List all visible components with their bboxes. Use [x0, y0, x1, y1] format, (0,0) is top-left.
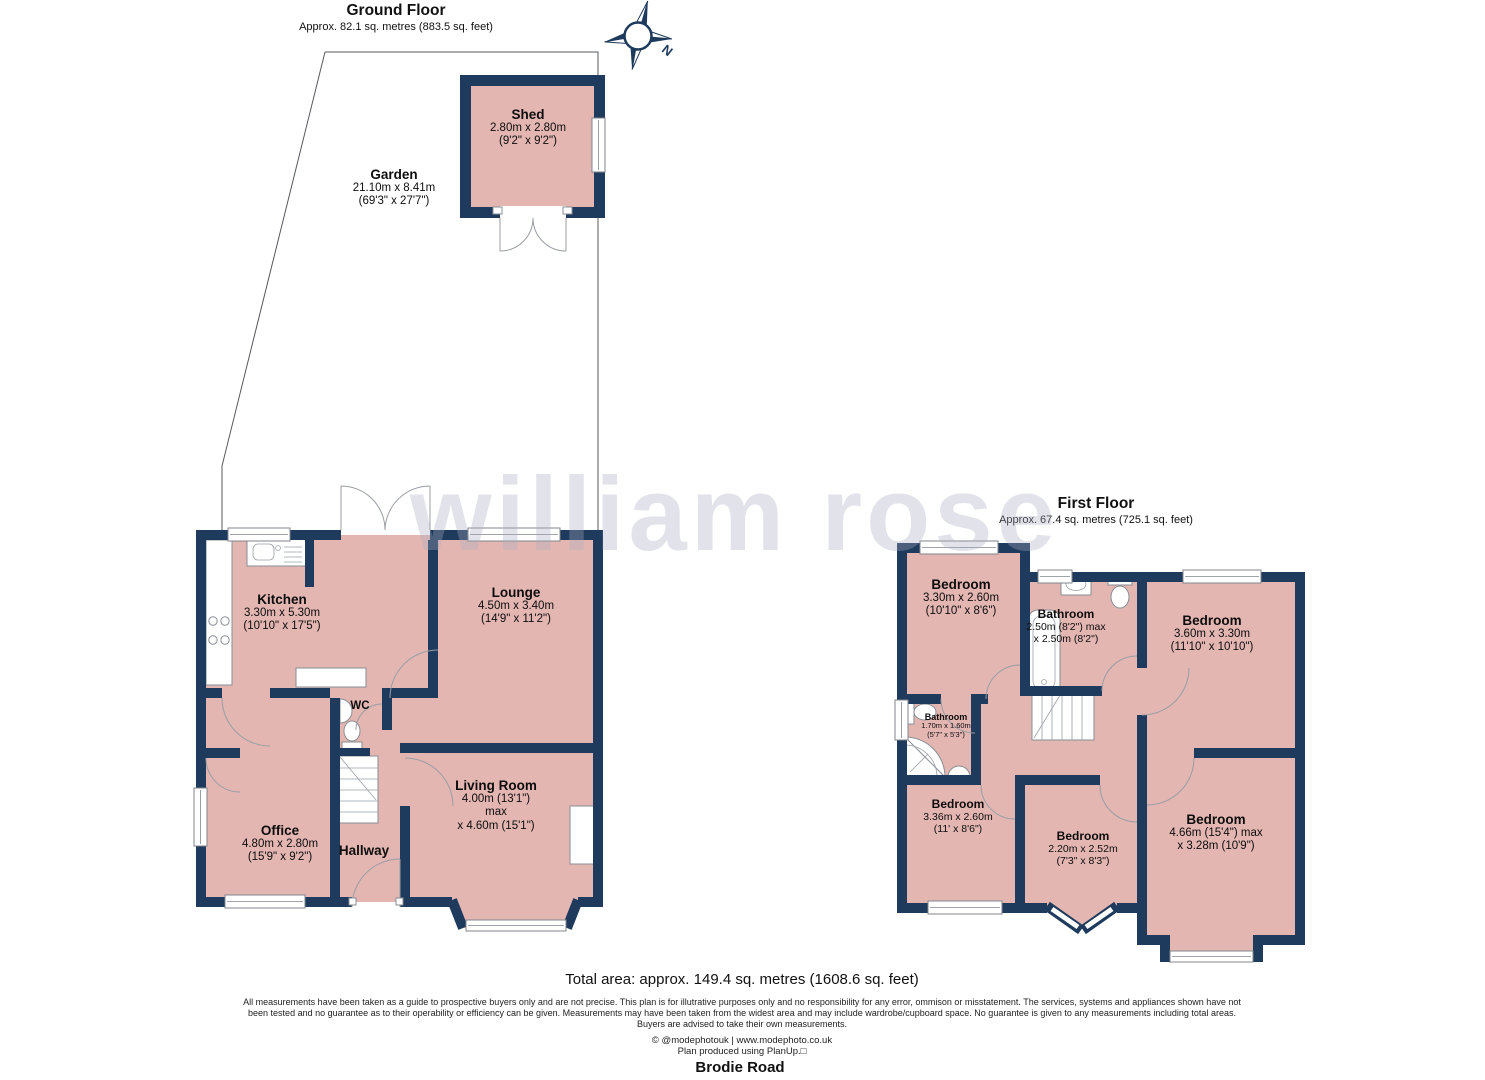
- room-name: Bedroom: [1169, 812, 1262, 827]
- room-dim-metric: 3.30m x 2.60m: [923, 592, 999, 605]
- room-dim-imperial: (69'3" x 27'7"): [353, 195, 435, 208]
- first-floor-title: First Floor Approx. 67.4 sq. metres (725…: [999, 495, 1193, 526]
- room-dim-imperial: (7'3" x 8'3"): [1048, 856, 1117, 868]
- room-label-hallway: Hallway: [339, 843, 389, 858]
- room-name: Office: [242, 823, 318, 838]
- room-dim-metric: 4.50m x 3.40m: [478, 600, 554, 613]
- room-dim-metric: 2.80m x 2.80m: [490, 122, 566, 135]
- room-dim-metric: 21.10m x 8.41m: [353, 182, 435, 195]
- room-dim-metric: 2.20m x 2.52m: [1048, 844, 1117, 856]
- shed: [460, 75, 605, 251]
- room-label-lounge: Lounge 4.50m x 3.40m (14'9" x 11'2"): [478, 585, 554, 627]
- shed-window: [592, 118, 605, 172]
- address-title: Brodie Road: [695, 1059, 784, 1076]
- room-dim-imperial: (9'2" x 9'2"): [490, 135, 566, 148]
- room-dim-imperial: (5'7" x 5'3"): [921, 731, 971, 740]
- room-name: Bathroom: [1026, 608, 1105, 622]
- room-dim-imperial: x 2.50m (8'2"): [1026, 634, 1105, 646]
- floor-title-text: First Floor: [999, 495, 1193, 513]
- disclaimer: All measurements have been taken as a gu…: [242, 997, 1242, 1030]
- room-label-bedroom-1: Bedroom 3.30m x 2.60m (10'10" x 8'6"): [923, 577, 999, 619]
- sink-icon: [247, 539, 307, 566]
- room-label-bedroom-2: Bedroom 3.60m x 3.30m (11'10" x 10'10"): [1171, 613, 1254, 655]
- room-name: Garden: [353, 167, 435, 182]
- room-name: WC: [350, 700, 369, 713]
- floor-subtitle-text: Approx. 67.4 sq. metres (725.1 sq. feet): [999, 514, 1193, 526]
- room-dim-metric: 3.36m x 2.60m: [923, 812, 992, 824]
- room-name: Lounge: [478, 585, 554, 600]
- room-label-bedroom-5: Bedroom 4.66m (15'4") max x 3.28m (10'9"…: [1169, 812, 1262, 854]
- compass-icon: N: [605, 1, 676, 70]
- room-label-living-room: Living Room 4.00m (13'1") max x 4.60m (1…: [453, 778, 539, 833]
- room-name: Hallway: [339, 843, 389, 858]
- disclaimer-line: been tested and no guarantee as to their…: [242, 1008, 1242, 1019]
- room-name: Shed: [490, 107, 566, 122]
- room-label-garden: Garden 21.10m x 8.41m (69'3" x 27'7"): [353, 167, 435, 209]
- room-dim-metric: 4.66m (15'4") max: [1169, 827, 1262, 840]
- floorplan-page: N: [0, 0, 1485, 1080]
- room-dim-imperial: x 4.60m (15'1"): [453, 820, 539, 833]
- compass-north-label: N: [659, 41, 676, 59]
- floor-subtitle-text: Approx. 82.1 sq. metres (883.5 sq. feet): [299, 21, 493, 33]
- room-name: Bedroom: [923, 798, 992, 812]
- room-name: Kitchen: [243, 592, 320, 607]
- room-dim-metric: 4.00m (13'1") max: [453, 793, 539, 819]
- credit-line-2: Plan produced using PlanUp.□: [678, 1046, 807, 1057]
- room-label-bathroom-2: Bathroom 1.70m x 1.60m (5'7" x 5'3"): [921, 712, 971, 739]
- room-label-bedroom-3: Bedroom 3.36m x 2.60m (11' x 8'6"): [923, 798, 992, 836]
- stairs-icon: [1032, 690, 1094, 740]
- room-name: Living Room: [453, 778, 539, 793]
- stairs-icon: [338, 756, 378, 823]
- room-name: Bedroom: [923, 577, 999, 592]
- shed-door-arcs: [500, 218, 566, 251]
- floorplan-canvas: N: [0, 0, 1485, 1080]
- room-label-wc: WC: [350, 700, 369, 713]
- room-dim-metric: 3.30m x 5.30m: [243, 607, 320, 620]
- kitchen-counter: [206, 540, 232, 685]
- room-label-bedroom-4: Bedroom 2.20m x 2.52m (7'3" x 8'3"): [1048, 830, 1117, 868]
- room-label-bathroom-1: Bathroom 2.50m (8'2") max x 2.50m (8'2"): [1026, 608, 1105, 646]
- room-label-office: Office 4.80m x 2.80m (15'9" x 9'2"): [242, 823, 318, 865]
- total-area-text: Total area: approx. 149.4 sq. metres (16…: [565, 971, 919, 988]
- room-name: Bedroom: [1171, 613, 1254, 628]
- floor-title-text: Ground Floor: [299, 2, 493, 20]
- room-dim-metric: 3.60m x 3.30m: [1171, 628, 1254, 641]
- room-dim-imperial: x 3.28m (10'9"): [1169, 840, 1262, 853]
- room-dim-imperial: (10'10" x 17'5"): [243, 620, 320, 633]
- room-label-shed: Shed 2.80m x 2.80m (9'2" x 9'2"): [490, 107, 566, 149]
- room-dim-imperial: (15'9" x 9'2"): [242, 851, 318, 864]
- ground-floor-title: Ground Floor Approx. 82.1 sq. metres (88…: [299, 2, 493, 33]
- room-dim-metric: 2.50m (8'2") max: [1026, 622, 1105, 634]
- room-label-kitchen: Kitchen 3.30m x 5.30m (10'10" x 17'5"): [243, 592, 320, 634]
- credit-line-1: © @modephotouk | www.modephoto.co.uk: [652, 1035, 832, 1046]
- disclaimer-line: Buyers are advised to take their own mea…: [242, 1019, 1242, 1030]
- room-dim-imperial: (11' x 8'6"): [923, 824, 992, 836]
- room-name: Bedroom: [1048, 830, 1117, 844]
- kitchen-table: [296, 668, 366, 687]
- room-dim-metric: 4.80m x 2.80m: [242, 838, 318, 851]
- wc-toilet-icon: [342, 721, 362, 750]
- room-dim-imperial: (14'9" x 11'2"): [478, 613, 554, 626]
- room-dim-imperial: (11'10" x 10'10"): [1171, 641, 1254, 654]
- disclaimer-line: All measurements have been taken as a gu…: [242, 997, 1242, 1008]
- room-dim-imperial: (10'10" x 8'6"): [923, 605, 999, 618]
